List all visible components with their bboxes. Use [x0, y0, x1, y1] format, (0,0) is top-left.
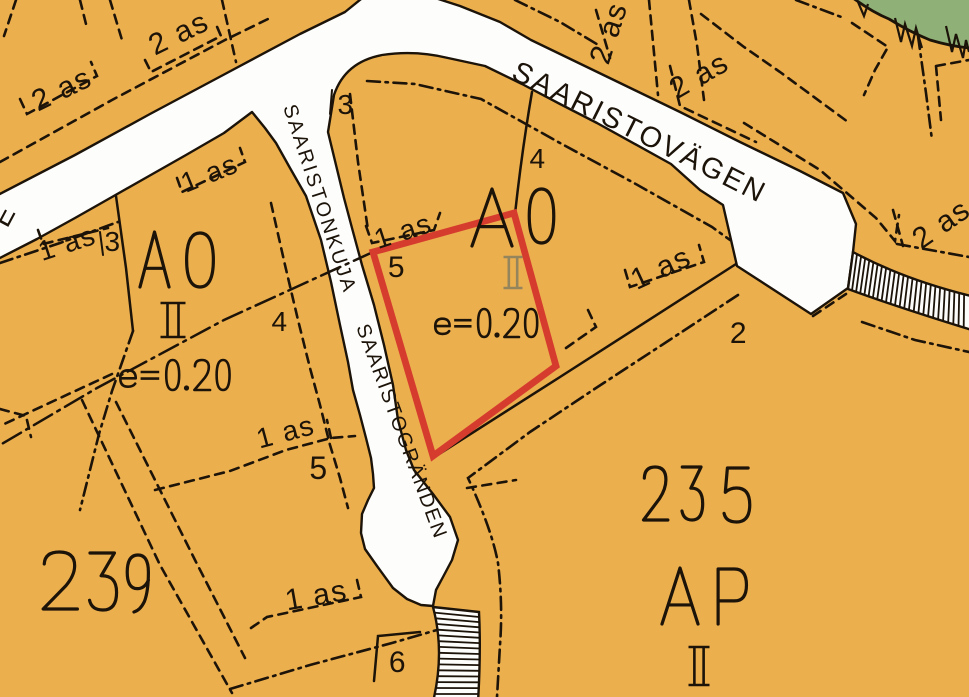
svg-text:2: 2	[730, 317, 748, 350]
svg-text:4: 4	[529, 143, 546, 174]
svg-text:3: 3	[104, 226, 121, 257]
svg-text:4: 4	[271, 306, 288, 337]
svg-text:6: 6	[389, 646, 407, 679]
svg-text:3: 3	[337, 89, 354, 120]
svg-text:5: 5	[309, 450, 328, 486]
svg-text:5: 5	[388, 251, 406, 284]
